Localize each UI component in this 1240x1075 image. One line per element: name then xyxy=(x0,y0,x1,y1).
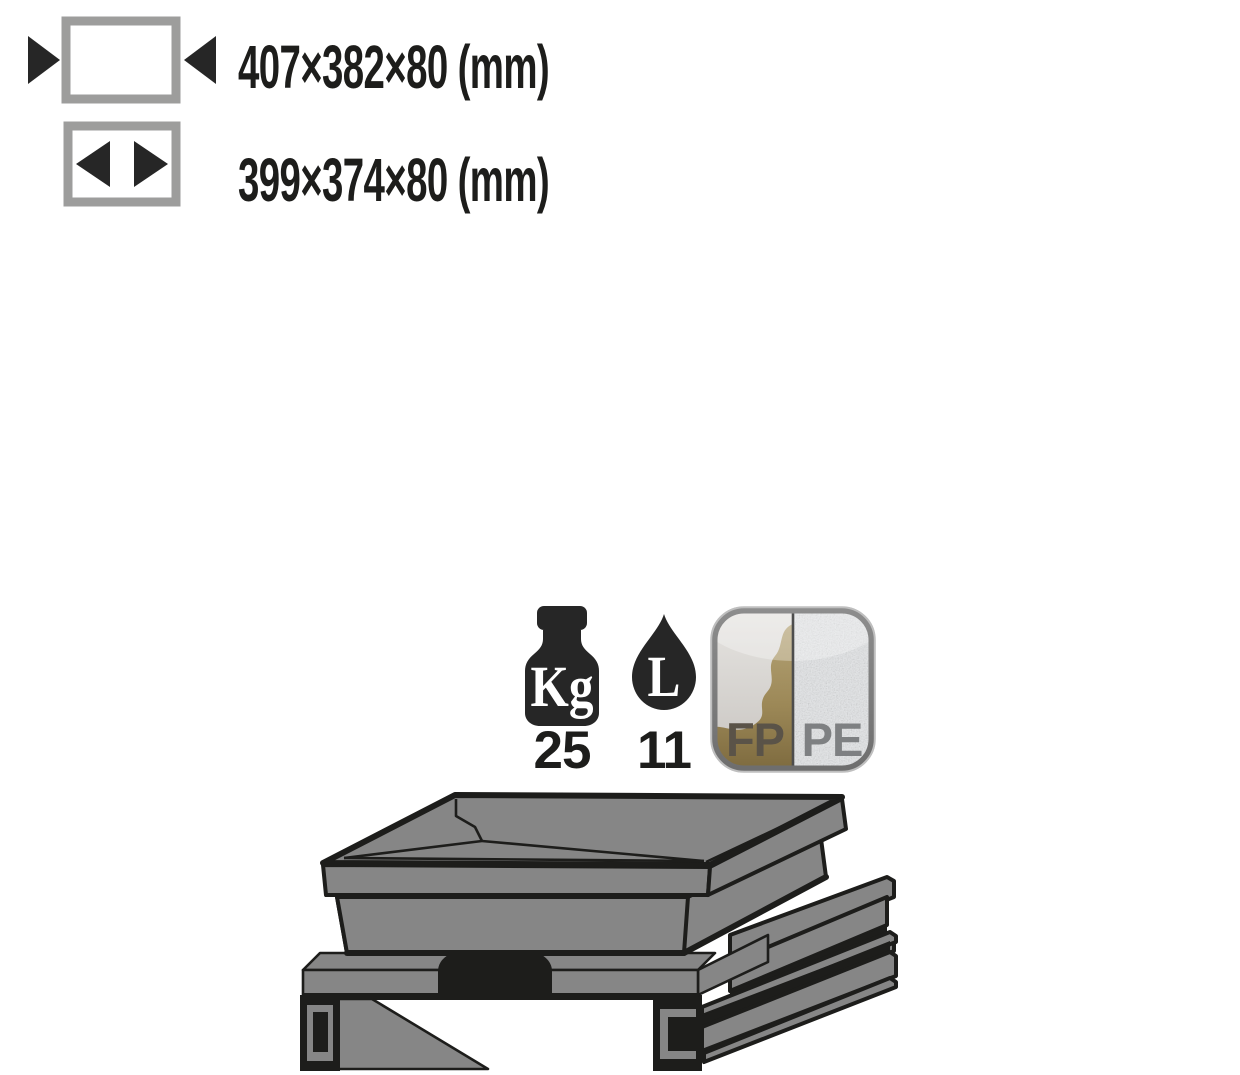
weight-icon: Kg xyxy=(516,603,608,729)
inner-dimensions-icon xyxy=(62,120,182,208)
volume-icon-wrap: L xyxy=(622,612,706,714)
material-pe-label: PE xyxy=(802,713,863,766)
material-fp-label: FP xyxy=(726,713,784,766)
outer-dimensions-icon-svg xyxy=(24,15,220,105)
max-load-icon: Kg xyxy=(516,603,608,729)
weight-handle xyxy=(537,606,587,630)
max-load-value: 25 xyxy=(506,724,618,777)
left-rail-profile xyxy=(300,995,488,1071)
outer-dimensions-icon xyxy=(24,15,220,105)
right-rail-profile xyxy=(653,995,702,1071)
pullout-tray-drawing xyxy=(290,785,910,1075)
weight-unit-label: Kg xyxy=(531,654,594,719)
volume-value: 11 xyxy=(622,724,706,777)
product-illustration xyxy=(290,785,910,1075)
board-bottom-edge xyxy=(303,993,698,1000)
drop-icon: L xyxy=(622,612,706,714)
material-badge-svg: FP PE xyxy=(710,606,876,773)
badge-divider xyxy=(792,610,795,769)
product-spec-sheet: 407×382×80 (mm) 399×374×80 (mm) Kg 25 L … xyxy=(0,0,1240,1075)
inner-dimensions-label: 399×374×80 (mm) xyxy=(238,135,549,225)
material-badge: FP PE xyxy=(710,606,876,773)
outer-dimensions-label: 407×382×80 (mm) xyxy=(238,22,549,112)
inner-dimensions-icon-svg xyxy=(62,120,182,208)
outer-box xyxy=(66,21,176,99)
arrow-left-icon xyxy=(184,36,216,84)
arrow-right-icon xyxy=(28,36,60,84)
volume-unit-label: L xyxy=(648,644,681,709)
